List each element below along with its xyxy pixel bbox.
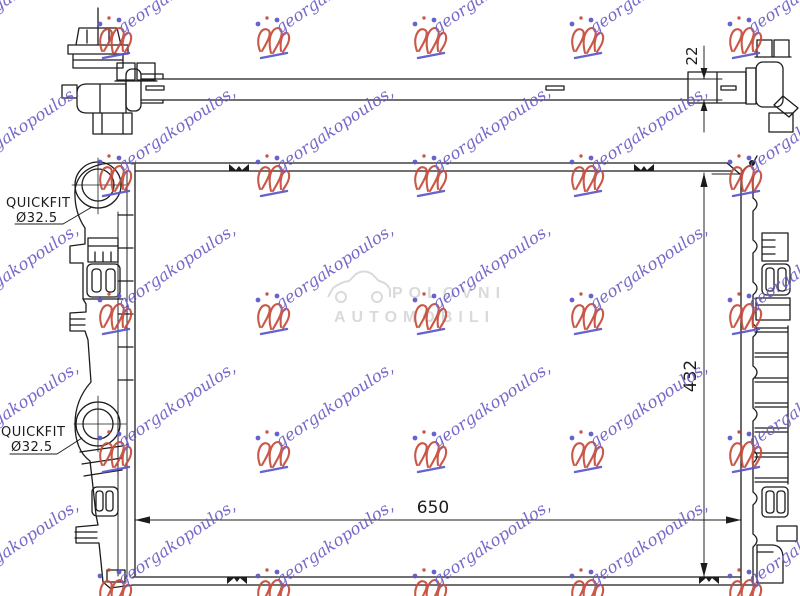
watermark-stamp-instance bbox=[256, 82, 397, 196]
radiator-technical-drawing: georgakopoulos, POLOVNI AUTOMOBILI bbox=[0, 0, 800, 596]
watermark-stamp-instance bbox=[413, 358, 554, 472]
watermark-stamp-instance bbox=[256, 358, 397, 472]
watermark-stamp-instance bbox=[0, 82, 82, 196]
connector-slot bbox=[106, 269, 115, 292]
car-wheel-icon bbox=[336, 292, 346, 302]
left-tank-details bbox=[70, 238, 125, 582]
watermark-stamp-instance bbox=[98, 220, 239, 334]
watermark-stamp-instance bbox=[413, 0, 554, 58]
right-tank-outline bbox=[741, 156, 757, 585]
crossbar-depth-value: 22 bbox=[683, 46, 701, 65]
watermark-stamp-instance bbox=[728, 358, 800, 472]
watermark-stamp-instance bbox=[570, 496, 711, 596]
connector-slot bbox=[106, 491, 113, 511]
diameter-label: Ø32.5 bbox=[11, 440, 53, 455]
watermark-stamp-instance bbox=[256, 0, 397, 58]
connector-slot bbox=[777, 491, 785, 513]
connector-slot bbox=[766, 491, 774, 513]
watermark-stamp-instance bbox=[728, 496, 800, 596]
watermark-stamp-instance bbox=[0, 0, 82, 58]
watermark-stamp-instance bbox=[570, 358, 711, 472]
filler-neck-fitting bbox=[62, 8, 157, 134]
watermark-stamp-instance bbox=[728, 220, 800, 334]
label-quickfit-bottom: QUICKFIT Ø32.5 bbox=[1, 425, 82, 455]
watermark-stamp-instance bbox=[570, 82, 711, 196]
watermark-stamp-instance bbox=[98, 0, 239, 58]
watermark-stamp-instance bbox=[0, 496, 82, 596]
quickfit-label: QUICKFIT bbox=[1, 425, 65, 440]
drawing-svg: georgakopoulos, POLOVNI AUTOMOBILI bbox=[0, 0, 800, 596]
core-width-value: 650 bbox=[417, 498, 449, 518]
connector-slot bbox=[92, 269, 101, 292]
crossbar-left-flange bbox=[126, 69, 141, 111]
car-wheel-icon bbox=[372, 292, 382, 302]
connector-slot bbox=[96, 491, 103, 511]
watermark-stamp-instance bbox=[256, 496, 397, 596]
watermark-stamp-instance bbox=[570, 220, 711, 334]
watermark-stamp-instance bbox=[98, 358, 239, 472]
watermark-stamp-instance bbox=[728, 82, 800, 196]
quickfit-label: QUICKFIT bbox=[6, 196, 70, 211]
watermark-stamp-instance bbox=[413, 82, 554, 196]
crossbar-slots bbox=[146, 86, 736, 90]
left-tank-rails bbox=[118, 171, 127, 577]
label-quickfit-top: QUICKFIT Ø32.5 bbox=[6, 196, 92, 226]
watermark-stamp-instance bbox=[98, 82, 239, 196]
left-tank-outline bbox=[70, 163, 135, 588]
core-mounting-clips bbox=[227, 164, 719, 584]
right-tank-ribs bbox=[755, 326, 788, 484]
watermark-stamp-instance bbox=[98, 496, 239, 596]
